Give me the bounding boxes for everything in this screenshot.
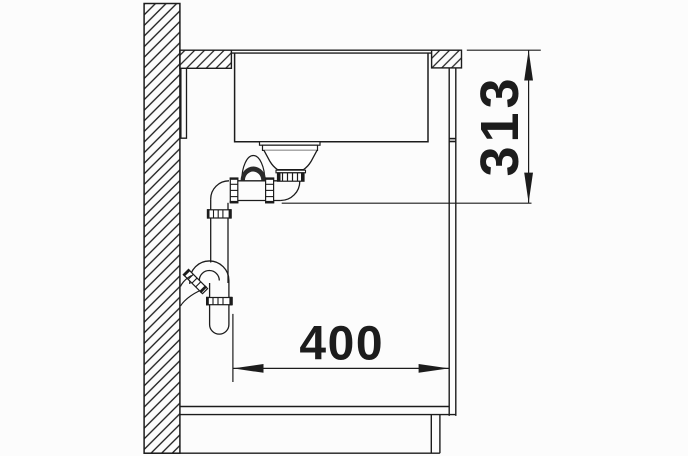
svg-text:400: 400 (299, 318, 384, 371)
svg-text:313: 313 (470, 74, 530, 176)
